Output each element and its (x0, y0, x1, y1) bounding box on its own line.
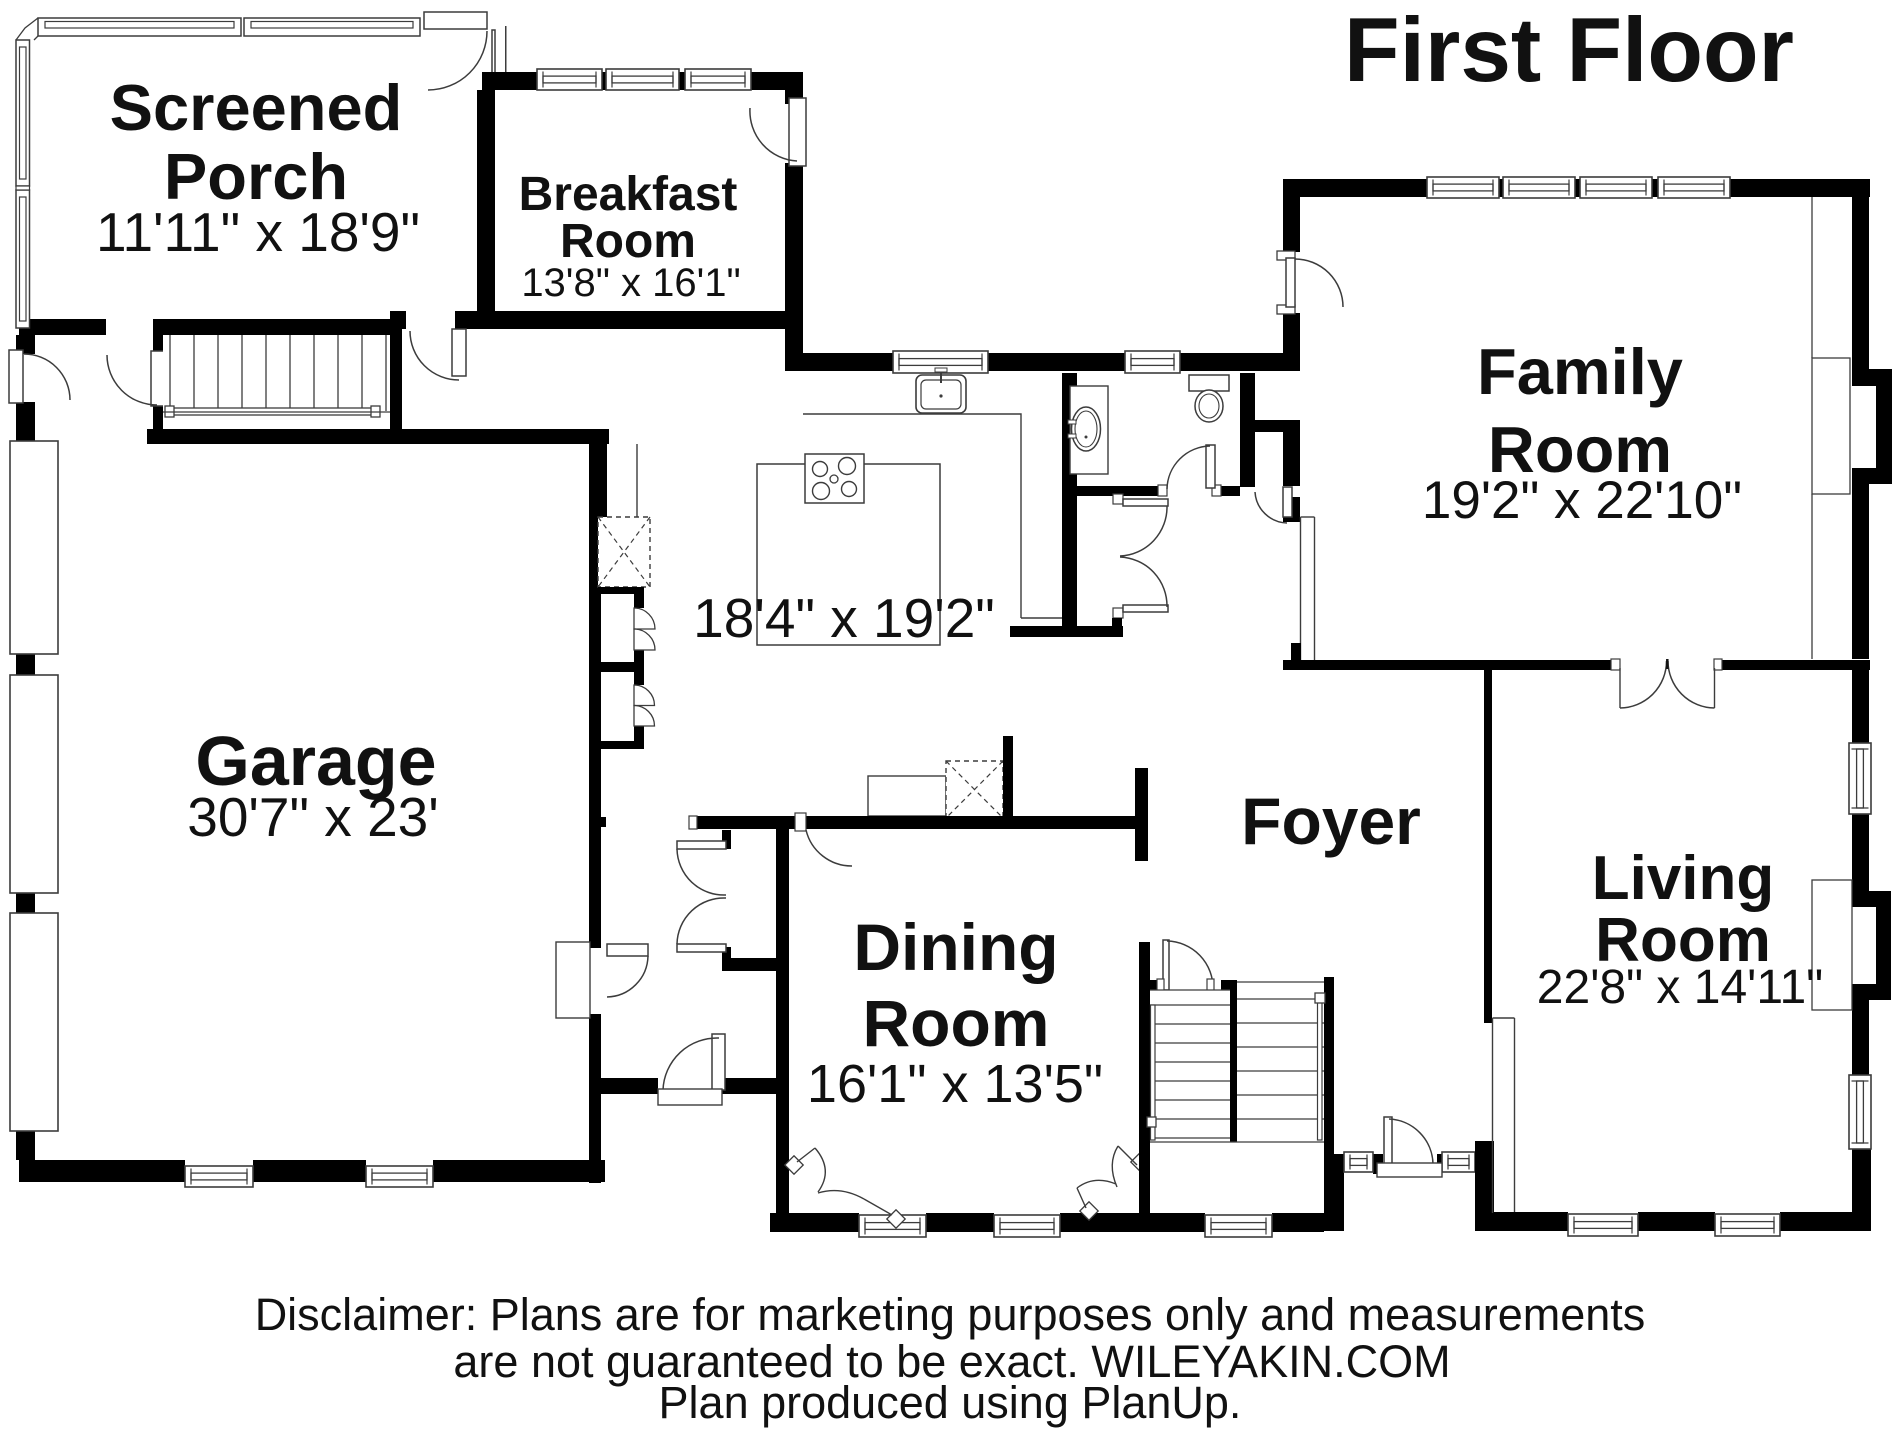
svg-text:13'8" x 16'1": 13'8" x 16'1" (521, 261, 740, 305)
svg-text:Screened: Screened (110, 71, 403, 144)
svg-text:22'8" x 14'11": 22'8" x 14'11" (1537, 961, 1823, 1014)
svg-text:19'2" x 22'10": 19'2" x 22'10" (1422, 471, 1742, 530)
svg-text:First Floor: First Floor (1344, 0, 1794, 101)
svg-text:Foyer: Foyer (1241, 784, 1421, 858)
svg-text:Family: Family (1477, 335, 1683, 408)
svg-text:Dining: Dining (853, 910, 1058, 984)
svg-text:Room: Room (863, 986, 1050, 1060)
svg-text:18'4" x 19'2": 18'4" x 19'2" (693, 587, 995, 649)
svg-text:Plan produced using PlanUp.: Plan produced using PlanUp. (659, 1377, 1242, 1428)
svg-text:Disclaimer: Plans are for mark: Disclaimer: Plans are for marketing purp… (255, 1289, 1646, 1340)
svg-text:30'7" x 23': 30'7" x 23' (187, 786, 439, 848)
svg-text:11'11" x 18'9": 11'11" x 18'9" (96, 201, 420, 263)
svg-text:Living: Living (1592, 844, 1775, 913)
svg-text:16'1" x 13'5": 16'1" x 13'5" (807, 1054, 1103, 1114)
svg-text:Breakfast: Breakfast (519, 168, 738, 221)
